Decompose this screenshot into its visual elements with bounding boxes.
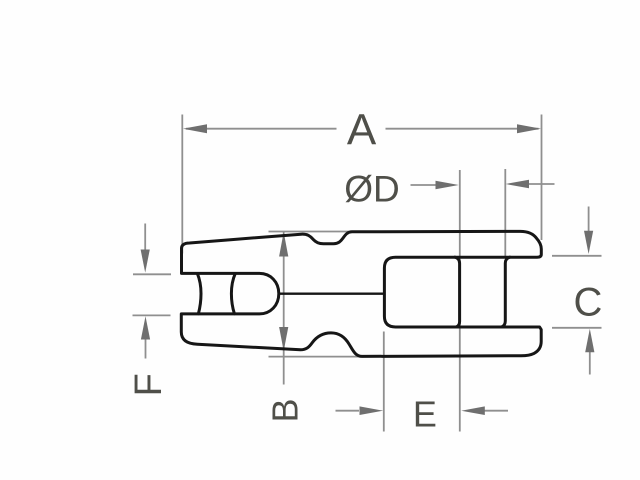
svg-text:ØD: ØD: [344, 169, 400, 210]
svg-text:F: F: [128, 373, 170, 396]
svg-text:A: A: [347, 106, 377, 155]
svg-text:E: E: [413, 393, 437, 434]
svg-text:C: C: [574, 281, 603, 325]
svg-text:B: B: [264, 398, 305, 422]
